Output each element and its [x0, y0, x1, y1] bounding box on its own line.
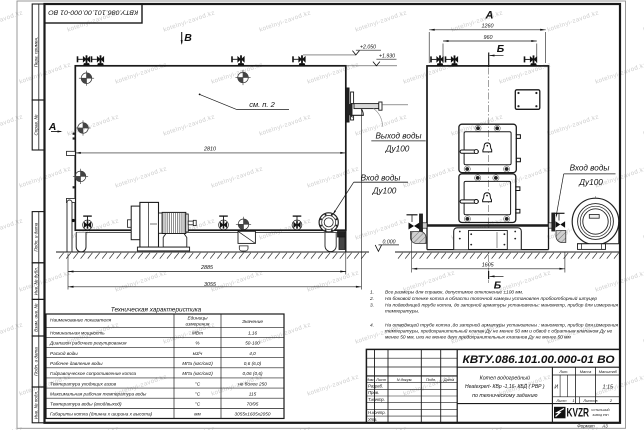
- svg-text:Изм.: Изм.: [366, 377, 374, 382]
- svg-text:2: 2: [609, 398, 613, 403]
- svg-text:1: 1: [572, 398, 574, 403]
- svg-text:не более 250: не более 250: [238, 381, 267, 386]
- svg-text:см. п. 2: см. п. 2: [249, 100, 275, 109]
- svg-text:А3: А3: [601, 423, 608, 428]
- svg-text:Формат: Формат: [577, 423, 595, 428]
- svg-text:Подп. и дата: Подп. и дата: [33, 347, 38, 376]
- svg-text:Температура уходящих газов: Температура уходящих газов: [50, 381, 117, 386]
- svg-text:Инв. № подл.: Инв. № подл.: [33, 391, 38, 420]
- svg-text:1260: 1260: [482, 24, 494, 30]
- svg-text:Перв. примен.: Перв. примен.: [33, 37, 38, 68]
- svg-text:0,6 (6,0): 0,6 (6,0): [244, 361, 262, 366]
- svg-text:3055х1605х2050: 3055х1605х2050: [235, 412, 271, 417]
- svg-text:Максимальная рабочая температу: Максимальная рабочая температура воды: [50, 391, 147, 396]
- svg-text:МПа (кгс/см2): МПа (кгс/см2): [182, 371, 213, 376]
- svg-text:Номинальная мощность: Номинальная мощность: [50, 331, 105, 336]
- svg-text:менее 50 мм, или не менее двух: менее 50 мм, или не менее двух предохран…: [385, 334, 571, 340]
- svg-text:На боковой стенке котла в обла: На боковой стенке котла в области топочн…: [385, 295, 597, 302]
- svg-text:Выход воды: Выход воды: [375, 132, 421, 141]
- svg-text:На подводящей трубе котла, д: На подводящей трубе котла, до запорной а…: [385, 302, 618, 309]
- svg-text:70/95: 70/95: [247, 402, 259, 407]
- svg-text:м3/ч: м3/ч: [193, 351, 203, 356]
- svg-text:1.: 1.: [370, 290, 374, 296]
- svg-text:Гидравлическое сопротивление к: Гидравлическое сопротивление котла: [50, 371, 137, 376]
- svg-text:2810: 2810: [203, 147, 216, 153]
- svg-text:Единицы: Единицы: [187, 315, 208, 321]
- svg-text:+2.050: +2.050: [360, 45, 376, 51]
- svg-text:%: %: [195, 341, 199, 346]
- svg-text:3.: 3.: [370, 303, 374, 309]
- svg-text:В: В: [184, 32, 192, 44]
- svg-text:Н.контр.: Н.контр.: [368, 410, 386, 415]
- svg-text:Пров.: Пров.: [368, 390, 379, 395]
- svg-text:N докум.: N докум.: [397, 377, 413, 382]
- svg-text:На отводящей трубе котла ,до з: На отводящей трубе котла ,до запорной ар…: [385, 322, 619, 329]
- svg-text:Вход воды: Вход воды: [570, 164, 610, 173]
- svg-text:Дата: Дата: [443, 377, 455, 382]
- svg-text:Подп. и дата: Подп. и дата: [33, 222, 38, 251]
- svg-text:4,0: 4,0: [249, 351, 256, 356]
- svg-text:Диапазон рабочего регулировани: Диапазон рабочего регулирования: [49, 341, 127, 346]
- svg-text:Ду100: Ду100: [385, 145, 410, 154]
- svg-text:1,16: 1,16: [248, 331, 258, 336]
- svg-text:KVZR: KVZR: [567, 408, 590, 420]
- svg-text:И: И: [554, 385, 558, 391]
- svg-text:Ду100: Ду100: [372, 187, 397, 196]
- svg-text:Масса: Масса: [580, 369, 592, 374]
- svg-text:Все размеры для справок, допус: Все размеры для справок, допустимое откл…: [385, 290, 523, 296]
- svg-text:мм: мм: [194, 412, 201, 417]
- svg-text:Котел водогрейный: Котел водогрейный: [480, 375, 530, 382]
- svg-text:Утв.: Утв.: [368, 417, 378, 422]
- svg-text:КВТУ.086.101.00.000-01 ВО: КВТУ.086.101.00.000-01 ВО: [463, 354, 615, 366]
- svg-text:МВт: МВт: [192, 331, 203, 336]
- svg-text:Справ. №: Справ. №: [33, 115, 38, 136]
- svg-text:960: 960: [484, 35, 493, 41]
- svg-text:50-100: 50-100: [245, 341, 260, 346]
- svg-text:Т.контр.: Т.контр.: [368, 397, 385, 402]
- svg-text:Б: Б: [497, 43, 505, 55]
- svg-text:Рабочее давление воды: Рабочее давление воды: [50, 361, 103, 366]
- svg-text:Габариты котла (длинна х ширин: Габариты котла (длинна х ширина х высота…: [50, 412, 153, 417]
- svg-text:измерения: измерения: [185, 322, 209, 327]
- svg-text:Лист: Лист: [375, 377, 387, 382]
- svg-text:КВТУ.086.101.00.000-01 ВО: КВТУ.086.101.00.000-01 ВО: [48, 9, 138, 16]
- svg-text:Расход воды: Расход воды: [50, 351, 78, 356]
- svg-text:Лит.: Лит.: [558, 369, 568, 374]
- svg-text:Значение: Значение: [242, 319, 263, 325]
- svg-text:температуры.: температуры.: [385, 310, 419, 315]
- svg-text:1:15: 1:15: [603, 385, 614, 391]
- svg-text:°С: °С: [195, 391, 201, 396]
- svg-text:Heatexpert- КВр -1,16- КБД ( Р: Heatexpert- КВр -1,16- КБД ( РВР ): [465, 384, 545, 390]
- svg-text:Вход воды: Вход воды: [361, 173, 401, 182]
- svg-text:КОТЕЛЬНЫЙ: КОТЕЛЬНЫЙ: [591, 408, 609, 412]
- svg-text:МПа (кгс/см2): МПа (кгс/см2): [182, 361, 213, 366]
- svg-text:2885: 2885: [200, 265, 214, 271]
- svg-text:ЗАВОД РЗП: ЗАВОД РЗП: [592, 413, 608, 417]
- svg-text:Инв. № дубл.: Инв. № дубл.: [33, 267, 38, 295]
- svg-text:115: 115: [249, 391, 257, 396]
- svg-text:4.: 4.: [370, 323, 374, 329]
- svg-text:Взам. инв. №: Взам. инв. №: [33, 303, 38, 331]
- svg-text:температуры, предохранительный: температуры, предохранительный клапан Ду…: [385, 328, 613, 335]
- svg-text:Температура воды (вход/выход): Температура воды (вход/выход): [50, 402, 122, 407]
- svg-text:А: А: [485, 9, 494, 21]
- svg-text:по техническому заданию: по техническому заданию: [472, 393, 537, 399]
- svg-text:0,06 (0,6): 0,06 (0,6): [242, 371, 263, 376]
- svg-text:Наименование показателя: Наименование показателя: [50, 318, 112, 324]
- svg-text:°С: °С: [195, 402, 201, 407]
- svg-text:°С: °С: [195, 381, 201, 386]
- svg-text:2.: 2.: [369, 296, 374, 302]
- svg-text:Масштаб: Масштаб: [599, 369, 618, 374]
- svg-text:Разраб.: Разраб.: [368, 384, 383, 389]
- svg-text:Лист: Лист: [555, 398, 567, 403]
- svg-text:Листов: Листов: [582, 398, 597, 403]
- svg-text:Техническая характеристика: Техническая характеристика: [111, 306, 202, 313]
- svg-text:+1.930: +1.930: [379, 54, 395, 60]
- svg-text:Б: Б: [494, 279, 502, 291]
- svg-text:Подп.: Подп.: [426, 377, 436, 382]
- svg-text:3055: 3055: [204, 282, 217, 288]
- svg-text:1605: 1605: [482, 262, 495, 268]
- svg-text:Ду100: Ду100: [578, 178, 603, 187]
- svg-text:0.000: 0.000: [383, 239, 396, 245]
